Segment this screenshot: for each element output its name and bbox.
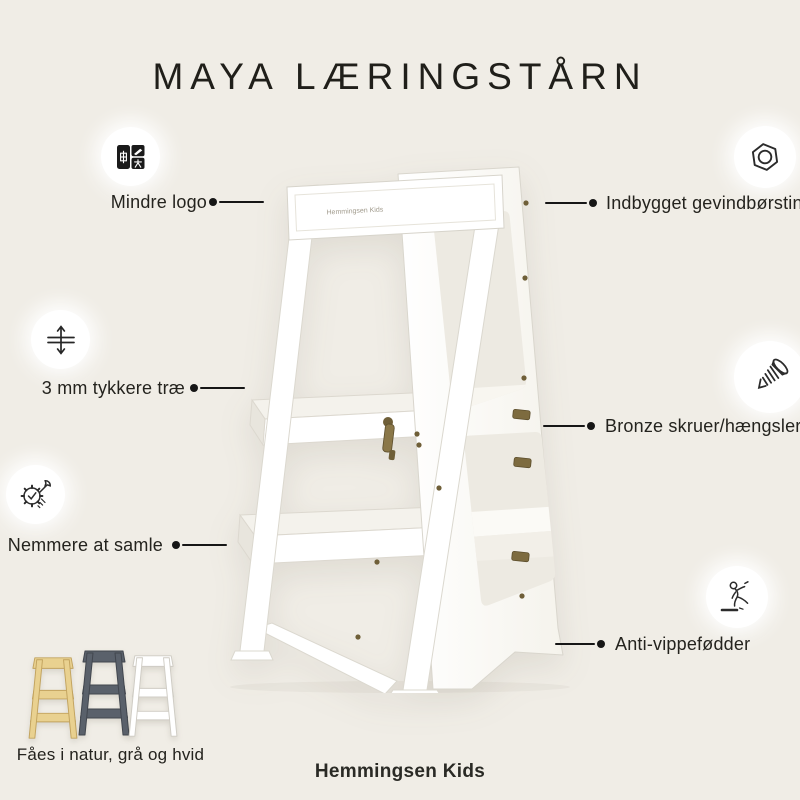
callout-label-mindre-logo: Mindre logo: [0, 189, 207, 215]
callout-dot: [190, 384, 198, 392]
assembly-icon: [6, 465, 65, 524]
callout-dot: [209, 198, 217, 206]
callout-dot: [597, 640, 605, 648]
variant-tower-hvid: [128, 652, 178, 740]
callout-dot: [587, 422, 595, 430]
callout-label-bronze: Bronze skruer/hængsler: [605, 413, 800, 439]
product-image: Hemmingsen Kids: [225, 158, 570, 693]
tower-left-foot: [231, 651, 273, 660]
hex-nut-icon: [734, 126, 796, 188]
callout-label-tykkere-trae: 3 mm tykkere træ: [0, 375, 185, 401]
callout-label-gevind: Indbygget gevindbørstin: [606, 190, 800, 216]
tower-front-foot: [387, 690, 443, 693]
variant-tower-graa: [78, 644, 130, 742]
screw-icon: [734, 341, 800, 413]
callout-label-antivip: Anti-vippefødder: [615, 631, 800, 657]
slipping-person-icon: [706, 566, 768, 628]
callout-dot: [172, 541, 180, 549]
variant-tower-natur: [28, 654, 78, 742]
tower-top-rail: Hemmingsen Kids: [287, 175, 504, 240]
callout-label-nemmere-at-samle: Nemmere at samle: [0, 532, 163, 558]
translate-icon: [101, 127, 160, 186]
callout-dot: [589, 199, 597, 207]
page-title: MAYA LÆRINGSTÅRN: [0, 56, 800, 98]
brand-name: Hemmingsen Kids: [0, 761, 800, 783]
thickness-icon: [31, 310, 90, 369]
callout-line: [182, 544, 227, 546]
color-variants-image: [18, 640, 218, 745]
